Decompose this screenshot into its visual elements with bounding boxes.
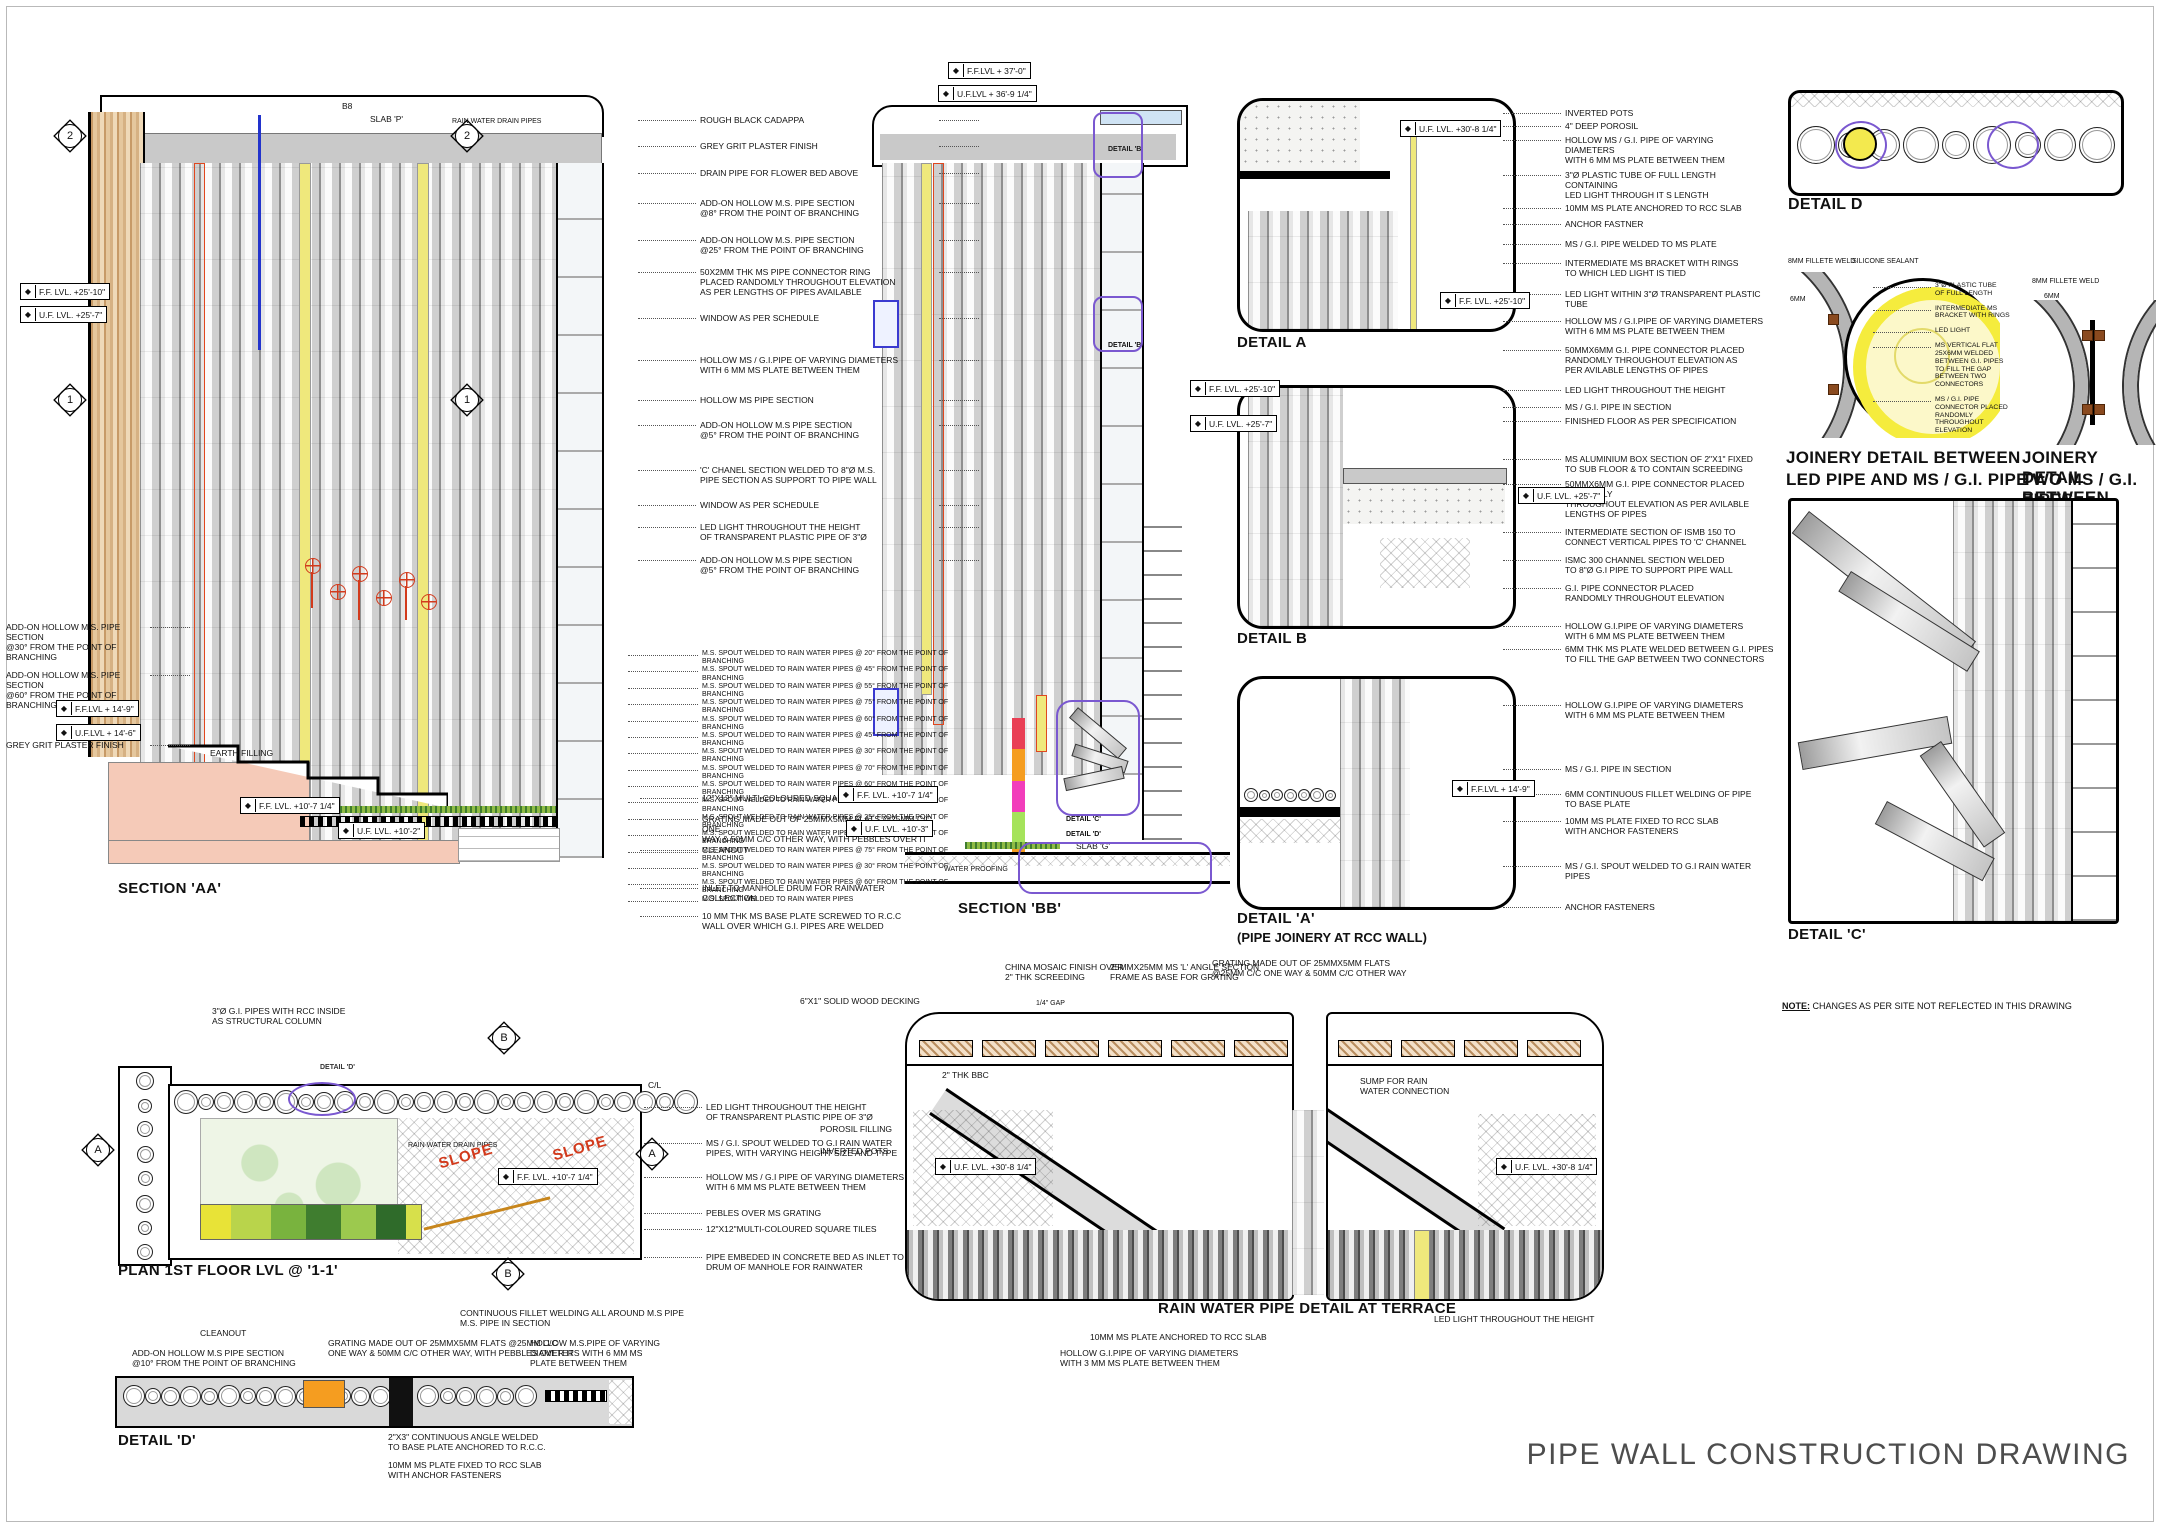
pipe-circle xyxy=(351,1387,370,1406)
pipe-circle xyxy=(2079,127,2115,163)
annotation-item: WINDOW AS PER SCHEDULE xyxy=(700,500,935,510)
terr-deck-row-right xyxy=(1338,1040,1581,1057)
annotation-item: PEBLES OVER MS GRATING xyxy=(706,1208,926,1218)
pipe-circle xyxy=(1310,788,1324,802)
plan-colour-strip xyxy=(200,1204,422,1240)
bb-uf-10-3-marker: U.F. LVL. +10'-3" xyxy=(846,820,933,837)
pipe-circle xyxy=(145,1388,161,1404)
pipe-circle xyxy=(256,1387,275,1406)
pipe-circle xyxy=(2044,129,2076,161)
pipe-circle xyxy=(234,1091,256,1113)
j2-weld-dot xyxy=(2094,330,2105,341)
annotation-item: 10MM MS PLATE FIXED TO RCC SLAB WITH ANC… xyxy=(1565,816,1765,836)
annotation-item: 50X2MM THK MS PIPE CONNECTOR RING PLACED… xyxy=(700,267,935,297)
pipe-circle xyxy=(256,1093,274,1111)
plan-cut-a-right: A xyxy=(640,1142,664,1166)
detail-d-hatch xyxy=(1791,93,2121,107)
aa-spout-icon xyxy=(352,566,368,582)
annotation-item: PIPE EMBEDED IN CONCRETE BED AS INLET TO… xyxy=(706,1252,926,1272)
dd2-hollow-label: HOLLOW M.S.PIPE OF VARYING DIAMETERS WIT… xyxy=(530,1338,660,1369)
terr-title: RAIN WATER PIPE DETAIL AT TERRACE xyxy=(1158,1300,1456,1317)
pipe-circle xyxy=(434,1091,456,1113)
aa-cut-1b: 1 xyxy=(455,388,479,412)
pipe-circle xyxy=(534,1091,556,1113)
dd2-plate-label: 10MM MS PLATE FIXED TO RCC SLAB WITH ANC… xyxy=(388,1460,542,1480)
terr-plate-label: 10MM MS PLATE ANCHORED TO RCC SLAB xyxy=(1090,1332,1267,1342)
annotation-item: ADD-ON HOLLOW M.S PIPE SECTION @5° FROM … xyxy=(700,420,935,440)
annotation-item: M.S. SPOUT WELDED TO RAIN WATER PIPES @ … xyxy=(702,666,952,682)
annotation-item: ADD-ON HOLLOW M.S. PIPE SECTION @8° FROM… xyxy=(700,198,935,218)
annotation-item: HOLLOW MS PIPE SECTION xyxy=(700,395,935,405)
plan-detail-d-oval xyxy=(288,1082,356,1116)
j1-weld-dot xyxy=(1828,314,1839,325)
aa-ff-10-7-marker: F.F. LVL. +10'-7 1/4" xyxy=(240,797,340,814)
aa-cut-2: 2 xyxy=(58,124,82,148)
aa-spout-icon xyxy=(305,558,321,574)
pipe-circle xyxy=(556,1093,574,1111)
pipe-circle xyxy=(240,1388,256,1404)
detail-d-box xyxy=(1788,90,2124,196)
annotation-item: ISMC 300 CHANNEL SECTION WELDED TO 8"Ø G… xyxy=(1565,555,1775,575)
terr-pipes-right xyxy=(1328,1230,1602,1299)
bb-detail-b-box-1 xyxy=(1093,112,1143,178)
pipe-circle xyxy=(275,1386,296,1407)
detail-a2-annotations: HOLLOW G.I.PIPE OF VARYING DIAMETERS WIT… xyxy=(1565,700,1765,912)
detail-b-hatch xyxy=(1380,538,1470,588)
pipe-circle xyxy=(1325,790,1336,801)
bb-detail-b-box-2 xyxy=(1093,296,1143,352)
j2-figure xyxy=(2030,300,2156,445)
aa-bottom-annotations: 12"X12" MULTI-COLOURED SQUARE TILESGRATI… xyxy=(702,793,937,931)
terr-deck-row-left xyxy=(919,1040,1288,1057)
detail-a-pipes xyxy=(1248,211,1398,329)
bb-right-wall xyxy=(1142,520,1182,840)
joinery-mid-annotations: 3"Ø PLASTIC TUBE OF FULL LENGTHINTERMEDI… xyxy=(1935,282,2020,435)
pipe-circle xyxy=(498,1094,514,1110)
annotation-item: ANCHOR FASTENERS xyxy=(1565,902,1765,912)
annotation-item: M.S. SPOUT WELDED TO RAIN WATER PIPES @ … xyxy=(702,716,952,732)
detail-c-wall xyxy=(2071,501,2118,921)
terr-deck-label: 6"X1" SOLID WOOD DECKING xyxy=(800,996,920,1006)
plan-right-annotations: LED LIGHT THROUGHOUT THE HEIGHT OF TRANS… xyxy=(706,1102,926,1272)
annotation-item: INTERMEDIATE MS BRACKET WITH RINGS TO WH… xyxy=(1565,258,1765,278)
pipe-circle xyxy=(370,1386,391,1407)
bb-tile-red xyxy=(1012,718,1025,749)
annotation-item: WINDOW AS PER SCHEDULE xyxy=(700,313,935,323)
pipe-circle xyxy=(515,1385,537,1407)
terr-gap-label: 1/4" GAP xyxy=(1036,1000,1065,1008)
detail-b-floor xyxy=(1343,468,1507,484)
annotation-item: 6MM THK MS PLATE WELDED BETWEEN G.I. PIP… xyxy=(1565,644,1775,664)
annotation-item: 10MM MS PLATE ANCHORED TO RCC SLAB xyxy=(1565,203,1765,213)
aa-spout-icon xyxy=(330,584,346,600)
detail-a-title: DETAIL A xyxy=(1237,334,1307,351)
annotation-item: HOLLOW G.I.PIPE OF VARYING DIAMETERS WIT… xyxy=(1565,621,1775,641)
terr-grating-label: GRATING MADE OUT OF 25MMX5MM FLATS @25MM… xyxy=(1212,958,1407,978)
detail-b-title: DETAIL B xyxy=(1237,630,1307,647)
aa-tiles xyxy=(458,828,560,862)
pipe-circle xyxy=(214,1092,234,1112)
annotation-item: M.S. SPOUT WELDED TO RAIN WATER PIPES @ … xyxy=(702,765,952,781)
pipe-circle xyxy=(414,1092,434,1112)
terr-bbc-label: 2" THK BBC xyxy=(942,1070,989,1080)
pipe-circle xyxy=(1271,789,1284,802)
pipe-circle xyxy=(137,1121,153,1137)
annotation-item: M.S. SPOUT WELDED TO RAIN WATER PIPES @ … xyxy=(702,650,952,666)
terr-panel-left: 2" THK BBC xyxy=(905,1012,1294,1301)
annotation-item: FINISHED FLOOR AS PER SPECIFICATION xyxy=(1565,416,1775,426)
detail-a-annotations: INVERTED POTS4" DEEP POROSILHOLLOW MS / … xyxy=(1565,108,1765,375)
annotation-item: INTERMEDIATE SECTION OF ISMB 150 TO CONN… xyxy=(1565,527,1775,547)
note-text: NOTE: CHANGES AS PER SITE NOT REFLECTED … xyxy=(1782,990,2072,1012)
annotation-item: MS / G.I. SPOUT WELDED TO G.I RAIN WATER… xyxy=(1565,861,1765,881)
terr-deck-line xyxy=(907,1064,1292,1066)
terr-deck-block xyxy=(1045,1040,1099,1057)
aa-earth-label: EARTH FILLING xyxy=(210,748,273,758)
aa-ff-14-9-marker: F.F.LVL + 14'-9" xyxy=(56,700,139,717)
j1-fillet-weld-label: 8MM FILLETE WELD xyxy=(1788,258,1855,266)
annotation-item: MS / G.I. PIPE CONNECTOR PLACED RANDOMLY… xyxy=(1935,396,2020,435)
bb-detail-d-ref: DETAIL 'D' xyxy=(1066,831,1101,839)
pipe-circle xyxy=(201,1388,218,1405)
pipe-circle xyxy=(514,1092,534,1112)
bb-detail-c-box xyxy=(1056,700,1140,816)
pipe-circle xyxy=(1284,789,1297,802)
aa-cut-2b: 2 xyxy=(455,124,479,148)
pipe-circle xyxy=(180,1386,201,1407)
annotation-item: MS / G.I. SPOUT WELDED TO G.I RAIN WATER… xyxy=(706,1138,926,1158)
annotation-item: G.I. PIPE CONNECTOR PLACED RANDOMLY THRO… xyxy=(1565,583,1775,603)
plan-pipe-row xyxy=(174,1088,634,1116)
dd2-orange-tile xyxy=(303,1380,345,1408)
terr-deck-block xyxy=(1527,1040,1581,1057)
detail-a2-plate xyxy=(1240,807,1340,817)
aa-uf-10-2-marker: U.F. LVL. +10'-2" xyxy=(338,822,425,839)
dd2-addon-label: ADD-ON HOLLOW M.S PIPE SECTION @10° FROM… xyxy=(132,1348,296,1368)
annotation-item: INLET TO MANHOLE DRUM FOR RAINWATER COLL… xyxy=(702,883,937,903)
aa-uf-25-7-marker: U.F. LVL. +25'-7" xyxy=(20,306,107,323)
aa-title: SECTION 'AA' xyxy=(118,880,221,897)
pipe-circle xyxy=(674,1090,698,1114)
pipe-circle xyxy=(198,1094,214,1110)
bb-detail-c-ref: DETAIL 'C' xyxy=(1066,816,1101,824)
detail-a-uf-marker: U.F. LVL. +30'-8 1/4" xyxy=(1400,120,1501,137)
pipe-circle xyxy=(138,1171,153,1186)
bb-title: SECTION 'BB' xyxy=(958,900,1061,917)
detail-a2-pipes xyxy=(1340,679,1410,907)
annotation-item: M.S. SPOUT WELDED TO RAIN WATER PIPES @ … xyxy=(702,748,952,764)
plan-ff-marker: F.F. LVL. +10'-7 1/4" xyxy=(498,1168,598,1185)
annotation-item: 4" DEEP POROSIL xyxy=(1565,121,1765,131)
dd2-pipe-row-2 xyxy=(417,1384,537,1408)
detail-a2-subtitle: (PIPE JOINERY AT RCC WALL) xyxy=(1237,930,1427,946)
terr-deck-block xyxy=(919,1040,973,1057)
pipe-circle xyxy=(476,1386,497,1407)
pipe-circle xyxy=(456,1093,474,1111)
bb-tile-magenta xyxy=(1012,781,1025,812)
pipe-circle xyxy=(634,1091,656,1113)
bb-uf-36-9-marker: U.F.LVL + 36'-9 1/4" xyxy=(938,85,1037,102)
detail-d-title: DETAIL D xyxy=(1788,196,1863,214)
pipe-circle xyxy=(656,1093,674,1111)
detail-a2-slab-hatch xyxy=(1240,819,1340,843)
bb-window-column xyxy=(1100,163,1144,775)
detail-a2-pots xyxy=(1244,785,1336,805)
annotation-item: M.S. SPOUT WELDED TO RAIN WATER PIPES @ … xyxy=(702,683,952,699)
drawing-sheet: B8 SLAB 'P' RAIN WATER DRAIN PIPES EARTH… xyxy=(0,0,2160,1528)
annotation-item: ADD-ON HOLLOW M.S PIPE SECTION @5° FROM … xyxy=(700,555,935,575)
detail-a-slab xyxy=(1240,101,1360,171)
annotation-item: ANCHOR FASTNER xyxy=(1565,219,1765,229)
aa-plaster-band xyxy=(108,133,602,165)
bb-yellow-led-pipe xyxy=(1036,695,1047,752)
dd2-cleanout-label: CLEANOUT xyxy=(200,1328,246,1338)
annotation-item: MS VERTICAL FLAT 25X6MM WELDED BETWEEN G… xyxy=(1935,342,2020,389)
aa-grid-label: B8 xyxy=(342,101,352,111)
pipe-circle xyxy=(1244,788,1258,802)
pipe-circle xyxy=(1298,789,1310,801)
annotation-item: LED LIGHT xyxy=(1935,327,2020,335)
detail-c-box xyxy=(1788,498,2119,924)
annotation-item: 'C' CHANEL SECTION WELDED TO 8"Ø M.S. PI… xyxy=(700,465,935,485)
annotation-item: ADD-ON HOLLOW M.S. PIPE SECTION @30° FRO… xyxy=(6,622,146,662)
j2-right-pipe-arc xyxy=(2124,300,2156,445)
pipe-circle xyxy=(374,1090,398,1114)
terr-yellow-pipe xyxy=(1414,1230,1430,1301)
j2-weld-dot xyxy=(2094,404,2105,415)
annotation-item: HOLLOW MS / G.I.PIPE OF VARYING DIAMETER… xyxy=(700,355,935,375)
annotation-item: HOLLOW G.I.PIPE OF VARYING DIAMETERS WIT… xyxy=(1565,700,1765,720)
plan-cut-b-bottom: B xyxy=(496,1262,520,1286)
terr-uf-marker-right: U.F. LVL. +30'-8 1/4" xyxy=(1496,1158,1597,1175)
bb-ff-10-7-marker: F.F. LVL. +10'-7 1/4" xyxy=(838,786,938,803)
terr-deck-block xyxy=(1171,1040,1225,1057)
aa-cut-1: 1 xyxy=(58,388,82,412)
aa-uf-14-6-marker: U.F.LVL + 14'-6" xyxy=(56,724,141,741)
aa-blue-pipe xyxy=(258,115,261,350)
pipe-circle xyxy=(1797,126,1835,164)
pipe-circle xyxy=(138,1099,152,1113)
plan-left-column xyxy=(118,1066,172,1266)
aa-spout-icon xyxy=(376,590,392,606)
terr-gap-pipes xyxy=(1292,1110,1324,1295)
terr-mosaic-label: CHINA MOSAIC FINISH OVER 2" THK SCREEDIN… xyxy=(1005,962,1124,982)
annotation-item: ROUGH BLACK CADAPPA xyxy=(700,115,935,125)
plan-cl-label: C/L xyxy=(648,1080,661,1090)
detail-b-ff-marker: F.F. LVL. +25'-10" xyxy=(1440,292,1530,309)
detail-b-screed xyxy=(1343,484,1505,524)
pipe-circle xyxy=(356,1093,374,1111)
annotation-item: INTERMEDIATE MS BRACKET WITH RINGS xyxy=(1935,305,2020,321)
annotation-item: HOLLOW MS / G.I.PIPE OF VARYING DIAMETER… xyxy=(1565,316,1765,336)
terr-hollow-label: HOLLOW G.I.PIPE OF VARYING DIAMETERS WIT… xyxy=(1060,1348,1238,1368)
j2-weld-dot xyxy=(2082,330,2093,341)
aa-spout-icon xyxy=(421,594,437,610)
aa-ff-25-10-marker: F.F. LVL. +25'-10" xyxy=(20,283,110,300)
dd2-divider xyxy=(389,1378,413,1426)
annotation-item: MS / G.I. PIPE IN SECTION xyxy=(1565,402,1775,412)
annotation-item: GREY GRIT PLASTER FINISH xyxy=(700,141,935,151)
pipe-circle xyxy=(598,1094,614,1110)
detail-a-plate xyxy=(1240,171,1390,179)
detail-d-purple-oval-1 xyxy=(1835,121,1887,169)
pipe-circle xyxy=(398,1094,414,1110)
terr-deck-block xyxy=(1464,1040,1518,1057)
annotation-item: HOLLOW MS / G.I. PIPE OF VARYING DIAMETE… xyxy=(1565,135,1765,165)
dd2-grating-strip xyxy=(545,1390,607,1402)
annotation-item: ADD-ON HOLLOW M.S. PIPE SECTION @25° FRO… xyxy=(700,235,935,255)
pipe-circle xyxy=(161,1387,180,1406)
j2-fillet-weld-label: 8MM FILLETE WELD xyxy=(2032,278,2099,286)
pipe-circle xyxy=(456,1387,475,1406)
bb-detail-d-box xyxy=(1018,842,1212,894)
pipe-circle xyxy=(417,1385,439,1407)
terr-panel-right: SUMP FOR RAIN WATER CONNECTION xyxy=(1326,1012,1604,1301)
annotation-item: MS / G.I. PIPE IN SECTION xyxy=(1565,764,1765,774)
terr-deck-block xyxy=(1234,1040,1288,1057)
pipe-circle xyxy=(497,1388,514,1405)
annotation-item: 50MMX6MM G.I. PIPE CONNECTOR PLACED RAND… xyxy=(1565,345,1765,375)
dd2-hatch-box xyxy=(609,1380,634,1424)
pipe-circle xyxy=(440,1388,456,1404)
dd2-angle-label: 2"X3" CONTINUOUS ANGLE WELDED TO BASE PL… xyxy=(388,1432,546,1452)
annotation-item: INVERTED POTS xyxy=(1565,108,1765,118)
pipe-circle xyxy=(1259,790,1270,801)
j2-left-pipe-arc xyxy=(2030,300,2088,445)
pipe-circle xyxy=(174,1090,198,1114)
terr-led-label: LED LIGHT THROUGHOUT THE HEIGHT xyxy=(1434,1314,1594,1324)
annotation-item: 12"X12"MULTI-COLOURED SQUARE TILES xyxy=(706,1224,926,1234)
plan-cut-a-left: A xyxy=(86,1138,110,1162)
detail-a-led-tube xyxy=(1410,121,1417,331)
annotation-item: HOLLOW MS / G.I PIPE OF VARYING DIAMETER… xyxy=(706,1172,926,1192)
plan-title: PLAN 1ST FLOOR LVL @ '1-1' xyxy=(118,1262,338,1279)
dd2-title: DETAIL 'D' xyxy=(118,1432,196,1449)
annotation-item: M.S. SPOUT WELDED TO RAIN WATER PIPES @ … xyxy=(702,699,952,715)
aa-spout-pipe xyxy=(311,572,313,608)
detail-a2-ff-marker: F.F.LVL + 14'-9" xyxy=(1452,780,1535,797)
detail-a2-title: DETAIL 'A' xyxy=(1237,910,1315,927)
j2-weld-dot xyxy=(2082,404,2093,415)
aa-spout-pipe xyxy=(405,586,407,620)
aa-spout-icon xyxy=(399,572,415,588)
j1-title-line2: LED PIPE AND MS / G.I. PIPE xyxy=(1786,470,2028,490)
annotation-item: CLEANOUT xyxy=(702,845,937,855)
plan-detail-d-ref: DETAIL 'D' xyxy=(320,1064,355,1072)
bb-uf-25-7-marker: U.F. LVL. +25'-7" xyxy=(1190,415,1277,432)
j1-weld-dot xyxy=(1828,384,1839,395)
bb-tile-orange-1 xyxy=(1012,749,1025,781)
aa-window-column xyxy=(556,163,604,858)
terr-sump-label: SUMP FOR RAIN WATER CONNECTION xyxy=(1360,1076,1449,1096)
dd2-fillet-label: CONTINUOUS FILLET WELDING ALL AROUND M.S… xyxy=(460,1308,684,1328)
j1-title-line1: JOINERY DETAIL BETWEEN xyxy=(1786,448,2021,468)
j1-silicone-label: SILICONE SEALANT xyxy=(1852,258,1919,266)
bb-tile-green xyxy=(1012,812,1025,843)
pipe-circle xyxy=(218,1385,240,1407)
terr-deck-block xyxy=(1401,1040,1455,1057)
detail-d-purple-oval-2 xyxy=(1987,121,2039,169)
annotation-item: MS ALUMINIUM BOX SECTION OF 2"X1" FIXED … xyxy=(1565,454,1775,474)
note-label: NOTE: xyxy=(1782,1001,1810,1011)
pipe-circle xyxy=(1942,131,1970,159)
note-body: CHANGES AS PER SITE NOT REFLECTED IN THI… xyxy=(1810,1001,2072,1011)
pipe-circle xyxy=(137,1146,154,1163)
pipe-circle xyxy=(123,1385,145,1407)
annotation-item: 6MM CONTINUOUS FILLET WELDING OF PIPE TO… xyxy=(1565,789,1765,809)
terr-deck-block xyxy=(1108,1040,1162,1057)
aa-earth-band xyxy=(108,840,460,864)
detail-b-annotations: LED LIGHT THROUGHOUT THE HEIGHTMS / G.I.… xyxy=(1565,385,1775,664)
annotation-item: LED LIGHT WITHIN 3"Ø TRANSPARENT PLASTIC… xyxy=(1565,289,1765,309)
plan-cut-b-top: B xyxy=(492,1026,516,1050)
pipe-circle xyxy=(474,1090,498,1114)
detail-c-title: DETAIL 'C' xyxy=(1788,926,1866,943)
terr-uf-marker-left: U.F. LVL. +30'-8 1/4" xyxy=(935,1158,1036,1175)
bb-ff-37-marker: F.F.LVL + 37'-0" xyxy=(948,62,1031,79)
annotation-item: MS / G.I. PIPE WELDED TO MS PLATE xyxy=(1565,239,1765,249)
pipe-circle xyxy=(614,1092,634,1112)
annotation-item: 3"Ø PLASTIC TUBE OF FULL LENGTH CONTAINI… xyxy=(1565,170,1765,200)
dd2-body xyxy=(115,1376,634,1428)
annotation-item: M.S. SPOUT WELDED TO RAIN WATER PIPES @ … xyxy=(702,732,952,748)
annotation-item: DRAIN PIPE FOR FLOWER BED ABOVE xyxy=(700,168,935,178)
annotation-item: 3"Ø PLASTIC TUBE OF FULL LENGTH xyxy=(1935,282,2020,298)
pipe-circle xyxy=(574,1090,598,1114)
pipe-circle xyxy=(136,1195,154,1213)
aa-spout-pipe xyxy=(358,580,360,620)
terr-deck-block xyxy=(1338,1040,1392,1057)
annotation-item: LED LIGHT THROUGHOUT THE HEIGHT OF TRANS… xyxy=(706,1102,926,1122)
aa-right-annotations: ROUGH BLACK CADAPPAGREY GRIT PLASTER FIN… xyxy=(700,115,935,575)
bb-ff-25-10-marker: F.F. LVL. +25'-10" xyxy=(1190,380,1280,397)
detail-b-box xyxy=(1237,385,1516,629)
pipe-circle xyxy=(138,1221,152,1235)
sheet-title: PIPE WALL CONSTRUCTION DRAWING xyxy=(1527,1438,2130,1472)
pipe-circle xyxy=(1903,127,1939,163)
terr-deck-line-2 xyxy=(1328,1064,1602,1066)
pipe-circle xyxy=(136,1072,154,1090)
plan-column-label: 3"Ø G.I. PIPES WITH RCC INSIDE AS STRUCT… xyxy=(212,1006,345,1026)
terr-pipes-left xyxy=(907,1230,1292,1299)
annotation-item: 10 MM THK MS BASE PLATE SCREWED TO R.C.C… xyxy=(702,911,937,931)
annotation-item: LED LIGHT THROUGHOUT THE HEIGHT OF TRANS… xyxy=(700,522,935,542)
bb-waterproofing-label: WATER PROOFING xyxy=(944,866,1008,874)
terr-deck-block xyxy=(982,1040,1036,1057)
annotation-item: LED LIGHT THROUGHOUT THE HEIGHT xyxy=(1565,385,1775,395)
annotation-item: GREY GRIT PLASTER FINISH xyxy=(6,740,146,750)
pipe-circle xyxy=(137,1244,153,1260)
detail-b-uf-marker: U.F. LVL. +25'-7" xyxy=(1518,487,1605,504)
aa-slab-label: SLAB 'P' xyxy=(370,114,403,124)
